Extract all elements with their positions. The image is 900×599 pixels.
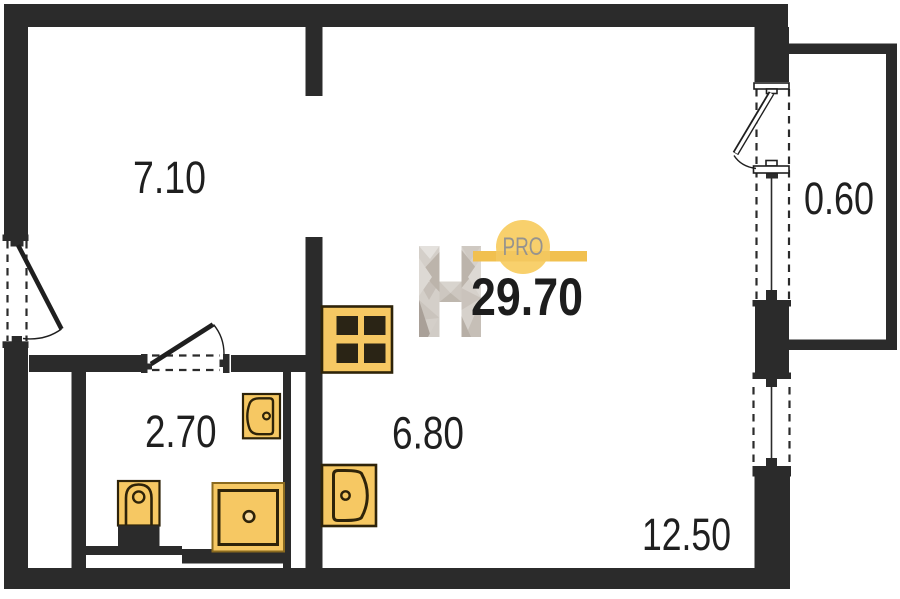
svg-text:PRO: PRO [503, 233, 544, 261]
svg-text:0.60: 0.60 [804, 173, 874, 224]
svg-text:7.10: 7.10 [133, 152, 206, 203]
svg-text:2.70: 2.70 [145, 406, 217, 457]
svg-text:12.50: 12.50 [642, 509, 731, 560]
svg-text:29.70: 29.70 [471, 268, 583, 327]
svg-text:6.80: 6.80 [392, 408, 464, 459]
